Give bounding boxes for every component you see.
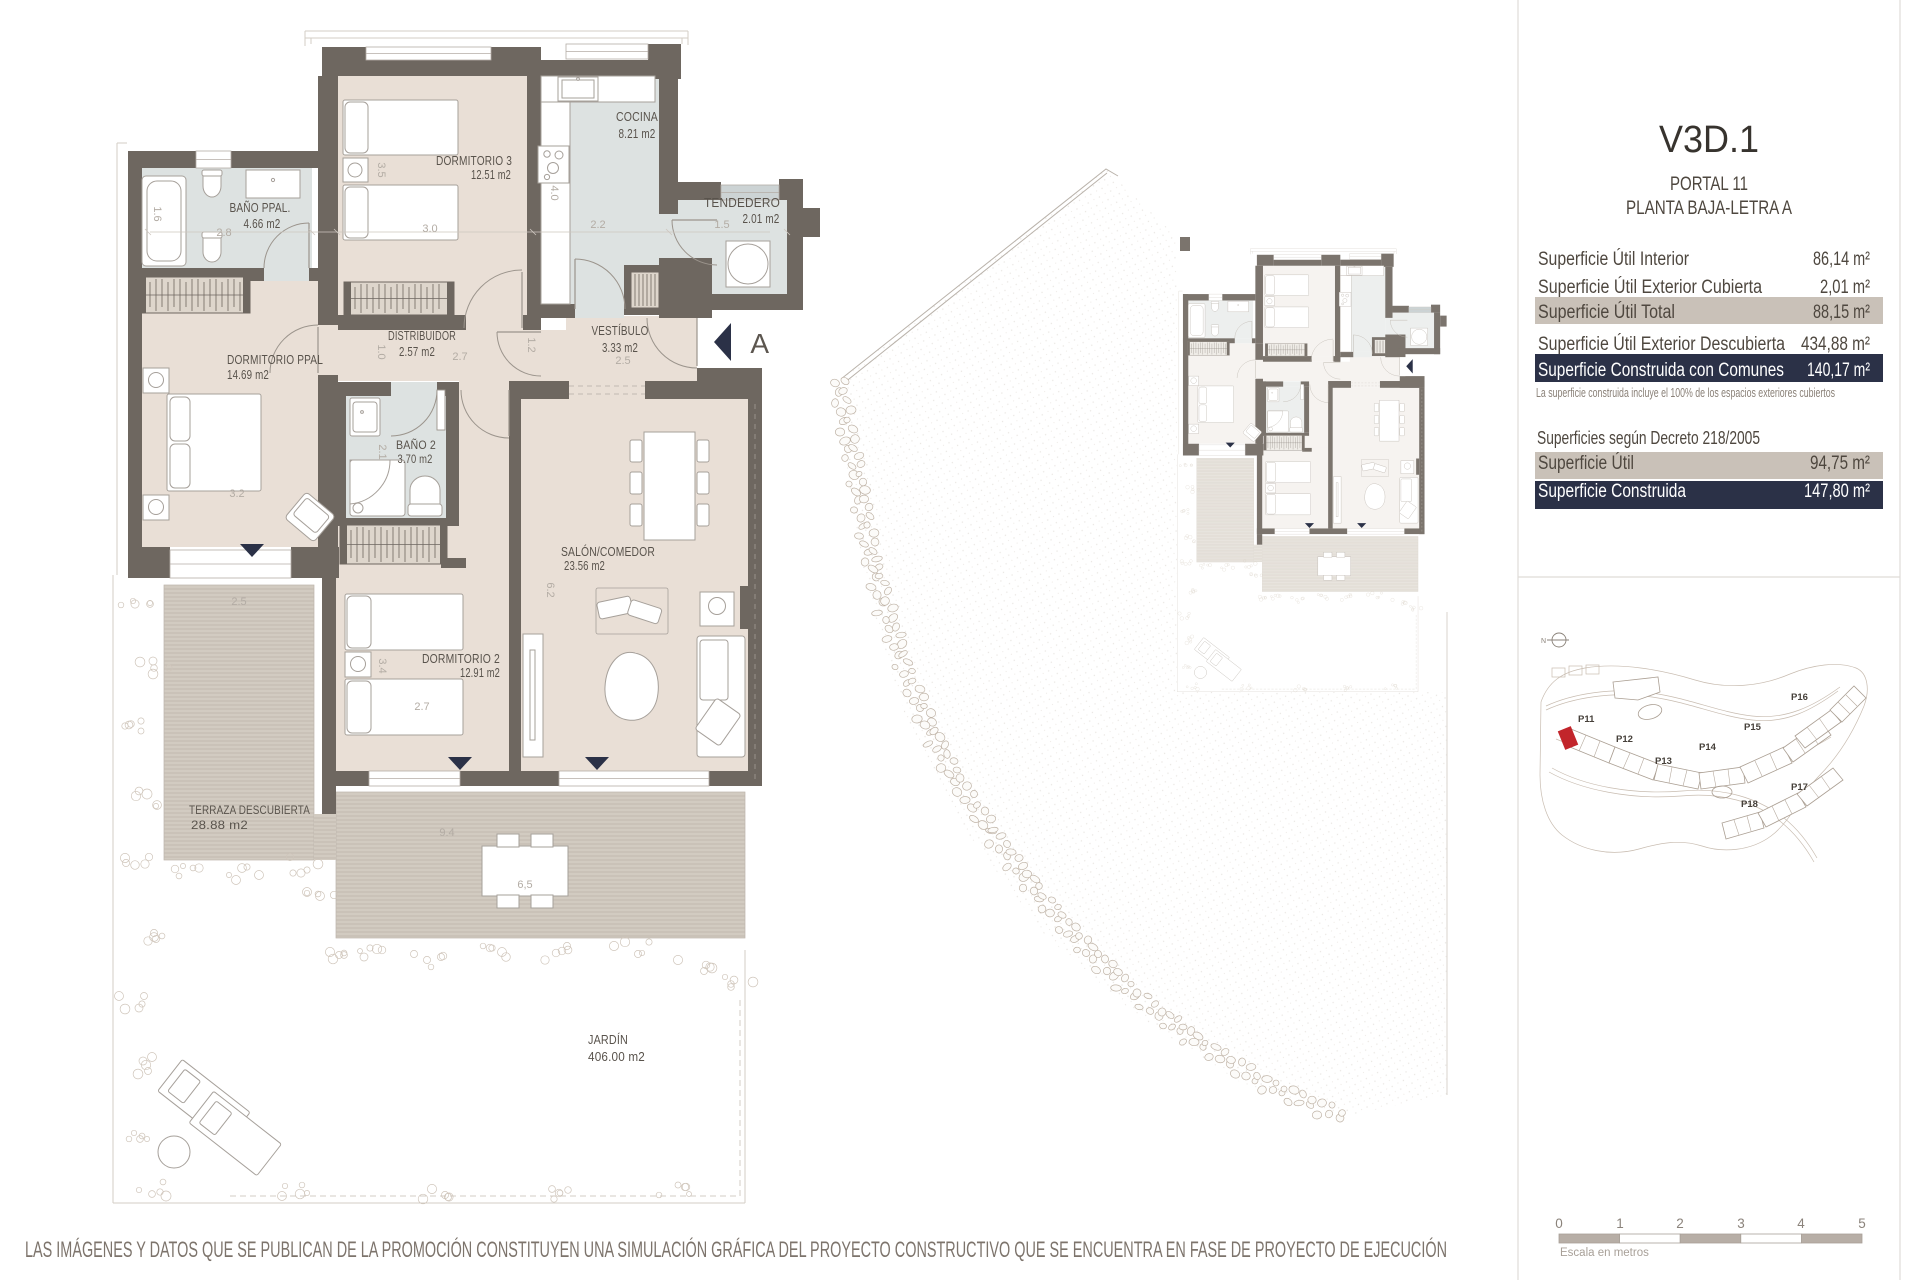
svg-text:147,80 m²: 147,80 m²	[1804, 481, 1870, 502]
svg-text:12.91 m2: 12.91 m2	[460, 666, 500, 680]
svg-text:4.0: 4.0	[548, 185, 560, 200]
svg-text:2.2: 2.2	[590, 219, 605, 231]
svg-text:COCINA: COCINA	[616, 110, 658, 124]
svg-text:3: 3	[1737, 1216, 1745, 1231]
svg-text:2.1: 2.1	[376, 444, 388, 459]
svg-text:2.5: 2.5	[231, 596, 246, 608]
svg-text:BAÑO 2: BAÑO 2	[396, 438, 436, 452]
svg-text:1.5: 1.5	[714, 219, 729, 231]
svg-text:P18: P18	[1741, 799, 1758, 810]
svg-text:23.56 m2: 23.56 m2	[564, 559, 605, 573]
svg-text:1.0: 1.0	[375, 344, 387, 359]
svg-text:Superficie Útil Exterior Cubie: Superficie Útil Exterior Cubierta	[1538, 276, 1762, 298]
svg-text:VESTÍBULO: VESTÍBULO	[592, 323, 649, 338]
svg-text:V3D.1: V3D.1	[1659, 119, 1759, 161]
svg-text:BAÑO PPAL.: BAÑO PPAL.	[230, 201, 291, 215]
svg-text:2.5: 2.5	[615, 355, 630, 367]
svg-text:1: 1	[1616, 1216, 1624, 1231]
svg-text:DORMITORIO PPAL: DORMITORIO PPAL	[227, 353, 323, 367]
svg-text:3.2: 3.2	[229, 488, 244, 500]
svg-text:2,01 m²: 2,01 m²	[1820, 277, 1870, 298]
svg-text:N: N	[1541, 638, 1546, 645]
svg-text:28.88 m2: 28.88 m2	[191, 818, 248, 832]
svg-text:6.2: 6.2	[544, 582, 556, 597]
svg-text:Superficie Construida: Superficie Construida	[1538, 481, 1686, 502]
svg-text:TENDEDERO: TENDEDERO	[704, 196, 780, 210]
svg-text:9.4: 9.4	[439, 827, 454, 839]
svg-text:2.57 m2: 2.57 m2	[399, 345, 435, 359]
svg-text:DISTRIBUIDOR: DISTRIBUIDOR	[388, 329, 456, 343]
svg-text:12.51 m2: 12.51 m2	[471, 168, 511, 182]
svg-text:TERRAZA DESCUBIERTA: TERRAZA DESCUBIERTA	[189, 803, 310, 817]
svg-text:LAS IMÁGENES Y DATOS QUE SE PU: LAS IMÁGENES Y DATOS QUE SE PUBLICAN DE …	[25, 1237, 1447, 1262]
svg-text:P12: P12	[1616, 734, 1633, 745]
svg-text:P16: P16	[1791, 692, 1808, 703]
svg-text:1.2: 1.2	[525, 337, 537, 352]
svg-text:406.00 m2: 406.00 m2	[588, 1050, 645, 1064]
svg-text:Escala en metros: Escala en metros	[1560, 1247, 1649, 1259]
svg-text:5: 5	[1858, 1216, 1866, 1231]
svg-text:Superficie Útil Exterior Descu: Superficie Útil Exterior Descubierta	[1538, 333, 1785, 355]
svg-text:Superficie Útil: Superficie Útil	[1538, 452, 1634, 474]
svg-text:JARDÍN: JARDÍN	[588, 1032, 628, 1047]
svg-text:P17: P17	[1791, 782, 1808, 793]
svg-text:0: 0	[1555, 1216, 1563, 1231]
svg-text:4.66 m2: 4.66 m2	[244, 217, 281, 231]
svg-text:86,14 m²: 86,14 m²	[1813, 249, 1870, 270]
svg-text:DORMITORIO 3: DORMITORIO 3	[436, 154, 512, 168]
svg-text:88,15 m²: 88,15 m²	[1813, 302, 1870, 323]
svg-text:1.6: 1.6	[151, 206, 163, 221]
svg-text:La superficie construida inclu: La superficie construida incluye el 100%…	[1536, 386, 1835, 400]
svg-text:PORTAL 11: PORTAL 11	[1670, 174, 1748, 195]
svg-text:Superficies según Decreto 218/: Superficies según Decreto 218/2005	[1537, 428, 1760, 448]
svg-text:94,75 m²: 94,75 m²	[1810, 453, 1870, 474]
svg-text:3.5: 3.5	[375, 162, 387, 177]
svg-text:2.8: 2.8	[216, 227, 231, 239]
svg-text:P15: P15	[1744, 722, 1762, 733]
svg-text:6,5: 6,5	[517, 879, 532, 891]
svg-text:DORMITORIO 2: DORMITORIO 2	[422, 652, 500, 666]
svg-text:SALÓN/COMEDOR: SALÓN/COMEDOR	[561, 544, 655, 559]
svg-text:14.69 m2: 14.69 m2	[227, 368, 269, 382]
svg-text:P13: P13	[1655, 756, 1672, 767]
svg-text:434,88 m²: 434,88 m²	[1801, 334, 1870, 355]
svg-text:P14: P14	[1699, 742, 1717, 753]
svg-text:3.0: 3.0	[422, 223, 437, 235]
svg-text:2.7: 2.7	[452, 351, 467, 363]
svg-text:4: 4	[1797, 1216, 1805, 1231]
svg-text:2.01 m2: 2.01 m2	[743, 212, 780, 226]
svg-text:140,17 m²: 140,17 m²	[1807, 360, 1870, 381]
svg-text:A: A	[750, 328, 769, 359]
svg-text:PLANTA BAJA-LETRA A: PLANTA BAJA-LETRA A	[1626, 198, 1792, 219]
svg-text:Superficie Útil Total: Superficie Útil Total	[1538, 301, 1675, 323]
svg-text:8.21 m2: 8.21 m2	[619, 127, 656, 141]
svg-text:Superficie Útil Interior: Superficie Útil Interior	[1538, 248, 1690, 270]
svg-text:Superficie Construida con Comu: Superficie Construida con Comunes	[1538, 360, 1784, 381]
svg-text:3.4: 3.4	[376, 658, 388, 673]
svg-text:P11: P11	[1578, 714, 1595, 725]
svg-text:3.33 m2: 3.33 m2	[602, 341, 638, 355]
svg-text:3.70 m2: 3.70 m2	[398, 452, 433, 466]
svg-text:2.7: 2.7	[414, 701, 429, 713]
svg-text:2: 2	[1676, 1216, 1684, 1231]
